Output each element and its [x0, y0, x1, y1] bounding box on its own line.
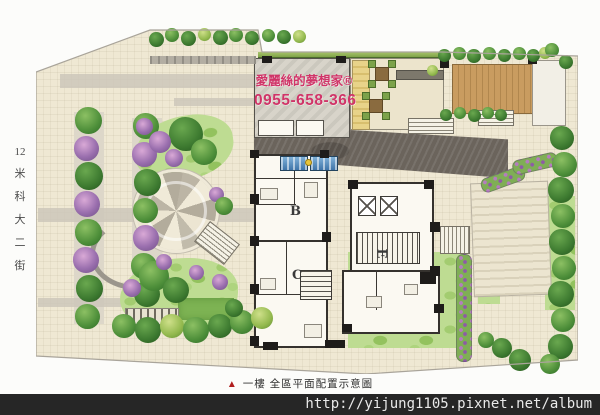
tree	[513, 47, 526, 60]
wall	[254, 178, 328, 179]
fixture	[304, 324, 322, 338]
tree	[293, 30, 306, 43]
wall	[254, 294, 304, 295]
street-label-char: 科	[15, 188, 26, 204]
tree	[135, 317, 161, 343]
tree	[181, 31, 196, 46]
phone-watermark: 0955-658-366	[254, 92, 354, 110]
tree	[165, 28, 179, 42]
unit-label-e: E	[373, 249, 388, 259]
tree	[208, 314, 232, 338]
room	[258, 120, 294, 136]
tree	[75, 304, 100, 329]
tree	[527, 49, 540, 62]
column-block	[320, 150, 329, 158]
tree	[163, 277, 189, 303]
column-block	[250, 236, 259, 246]
tree	[191, 139, 217, 165]
tree	[498, 49, 511, 62]
tree	[112, 314, 136, 338]
column-block	[420, 272, 436, 284]
tree	[225, 299, 243, 317]
street-label-char: 街	[15, 257, 26, 273]
chair	[382, 92, 390, 100]
column-block	[342, 324, 352, 332]
chair	[388, 60, 396, 68]
tree	[75, 162, 103, 190]
tree	[454, 107, 466, 119]
table	[369, 99, 383, 113]
column-block	[262, 56, 272, 63]
flowering-tree	[74, 191, 100, 217]
flower-hedge	[456, 254, 472, 362]
tree	[540, 354, 560, 374]
room	[296, 120, 324, 136]
flowering-tree	[165, 149, 183, 167]
fixture	[366, 296, 382, 308]
water-feature	[310, 156, 338, 171]
tree	[495, 109, 507, 121]
fixture	[260, 188, 278, 200]
tree	[215, 197, 233, 215]
terrace	[532, 60, 566, 126]
column-block	[434, 304, 444, 313]
tree	[440, 109, 452, 121]
tree	[509, 349, 531, 371]
tree	[133, 198, 158, 223]
patio-table-set	[362, 92, 388, 118]
tree	[468, 109, 481, 122]
plan-caption: ▲一樓 全區平面配置示意圖	[0, 376, 600, 391]
flowering-tree	[136, 118, 153, 135]
chair	[388, 80, 396, 88]
tree	[183, 317, 209, 343]
tree	[427, 65, 438, 76]
tree	[453, 47, 466, 60]
street-label-char: 12	[15, 146, 26, 158]
caption-triangle-icon: ▲	[227, 379, 237, 390]
tree	[467, 49, 481, 63]
unit-label-c: C	[292, 268, 302, 283]
chair	[362, 112, 370, 120]
wall	[286, 242, 287, 294]
tree	[559, 55, 573, 69]
flowering-tree	[74, 136, 99, 161]
tree	[149, 32, 164, 47]
canopy-edge	[258, 52, 440, 58]
footer-url: http://yijung1105.pixnet.net/album	[305, 396, 592, 412]
elevator-icon	[358, 196, 376, 216]
column-block	[325, 340, 345, 348]
tree	[551, 204, 575, 228]
column-block	[424, 180, 434, 189]
tree	[262, 29, 275, 42]
tree	[213, 30, 228, 45]
brand-watermark: 愛麗絲的夢想家®	[254, 70, 354, 89]
flowering-tree	[156, 254, 172, 270]
tree	[551, 308, 575, 332]
tree	[229, 28, 243, 42]
fixture	[260, 278, 276, 290]
column-block	[336, 56, 346, 63]
column-block	[322, 232, 331, 242]
tree	[552, 256, 576, 280]
driveway-ramp	[470, 181, 552, 298]
tree	[277, 30, 291, 44]
tree	[482, 107, 494, 119]
tree	[545, 43, 559, 57]
staircase	[300, 270, 332, 300]
flowering-tree	[133, 225, 159, 251]
fixture	[404, 284, 418, 295]
tree	[550, 126, 574, 150]
chair	[368, 80, 376, 88]
unit-label-b: B	[290, 204, 301, 219]
column-block	[250, 150, 259, 158]
tree	[549, 229, 575, 255]
tree	[548, 177, 574, 203]
column-block	[263, 342, 278, 350]
table	[375, 67, 389, 81]
column-block	[250, 194, 259, 204]
fixture	[304, 182, 318, 198]
site-plan: 愛麗絲的夢想家® 0955-658-366 B C E	[36, 26, 578, 374]
tree	[552, 152, 577, 177]
duck-ornament	[305, 159, 312, 166]
flowering-tree	[189, 265, 204, 280]
chair	[382, 112, 390, 120]
tree	[478, 332, 494, 348]
boundary-wall	[150, 56, 256, 64]
street-label-char: 二	[15, 234, 26, 250]
tree	[160, 314, 184, 338]
tree	[198, 28, 211, 41]
column-block	[250, 336, 259, 346]
url-footer-bar: http://yijung1105.pixnet.net/album	[0, 394, 600, 415]
column-block	[250, 284, 259, 294]
caption-text: 一樓 全區平面配置示意圖	[243, 378, 373, 390]
tree	[251, 307, 273, 329]
street-label-char: 大	[15, 211, 26, 227]
street-label-char: 米	[15, 165, 26, 181]
tree	[245, 31, 259, 45]
patio-table-set	[368, 60, 394, 86]
wooden-deck	[452, 64, 534, 114]
flowering-tree	[73, 247, 99, 273]
elevator-icon	[380, 196, 398, 216]
flowering-tree	[212, 274, 228, 290]
tree	[483, 47, 496, 60]
street-label: 12米科大二街	[10, 146, 30, 273]
tree	[75, 219, 102, 246]
column-block	[430, 222, 440, 232]
tree	[134, 169, 161, 196]
column-block	[348, 180, 358, 189]
tree	[438, 49, 451, 62]
water-feature	[280, 156, 308, 171]
tree	[76, 275, 103, 302]
flowering-tree	[123, 279, 141, 297]
tree	[75, 107, 102, 134]
tree	[548, 281, 574, 307]
steps	[440, 226, 470, 254]
